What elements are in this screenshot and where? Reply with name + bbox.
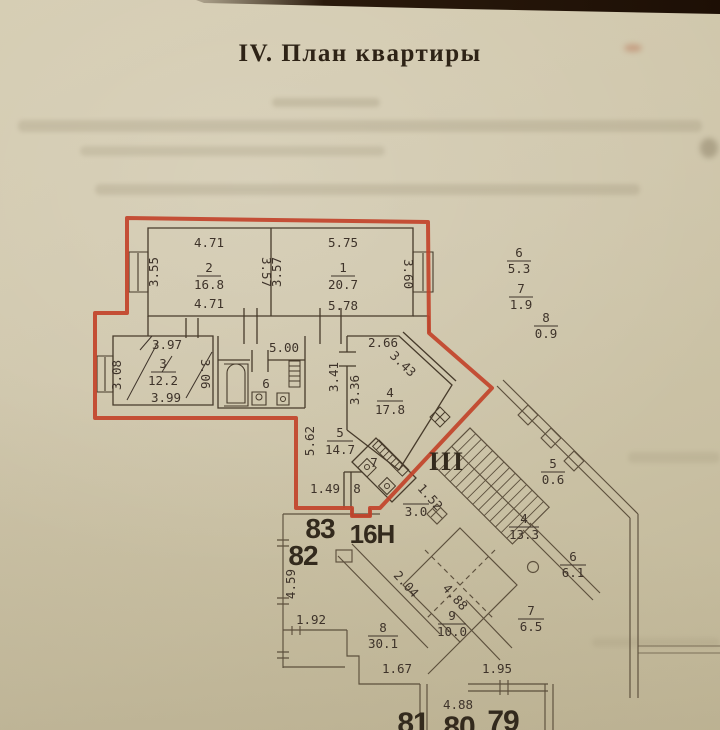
room5-area: 14.7 bbox=[325, 442, 355, 457]
stair6-number: 6 bbox=[569, 549, 577, 564]
room3-number: 3 bbox=[159, 356, 167, 371]
room8-plan-label: 8 bbox=[353, 481, 361, 496]
stair5-number: 5 bbox=[549, 456, 557, 471]
stair8-area: 30.1 bbox=[368, 636, 398, 651]
dim-seg4: 4.88 bbox=[443, 697, 473, 712]
stair8-number: 8 bbox=[379, 620, 387, 635]
room1-dim-top: 5.75 bbox=[328, 235, 358, 250]
scanned-floor-plan-page: IV. План квартиры bbox=[0, 0, 720, 730]
room7-plan-label: 7 bbox=[370, 455, 378, 470]
room6-plan-label: 6 bbox=[262, 376, 270, 391]
dim-landing-l: 3.0 bbox=[405, 504, 428, 519]
room4-area: 17.8 bbox=[375, 402, 405, 417]
room2-dim-top: 4.71 bbox=[194, 235, 224, 250]
room3-area: 12.2 bbox=[148, 373, 178, 388]
room6-area: 5.3 bbox=[508, 261, 531, 276]
dim-seg1: 1.92 bbox=[296, 612, 326, 627]
room6-number: 6 bbox=[515, 245, 523, 260]
room7-number: 7 bbox=[517, 281, 525, 296]
room4-number: 4 bbox=[386, 385, 394, 400]
dim-seg2: 1.67 bbox=[382, 661, 412, 676]
entry-dim: 1.49 bbox=[310, 481, 340, 496]
floor-plan-svg: 4.71 3.55 3.57 2 16.8 4.71 5.75 3.57 3.6… bbox=[0, 0, 720, 730]
room5-number: 5 bbox=[336, 425, 344, 440]
room4-dim-diagonal: 3.43 bbox=[387, 348, 419, 380]
room2-dim-bottom: 4.71 bbox=[194, 296, 224, 311]
room1-dim-right: 3.60 bbox=[401, 259, 416, 289]
room5-dim-side: 5.62 bbox=[302, 426, 317, 456]
unit-79: 79 bbox=[487, 705, 519, 730]
dim-corr-w: 2.04 bbox=[391, 568, 422, 600]
room2-dim-left: 3.55 bbox=[146, 257, 161, 287]
unit-16n: 16Н bbox=[350, 519, 395, 549]
room3-dim-left: 3.08 bbox=[109, 360, 124, 390]
unit-81: 81 bbox=[397, 707, 429, 730]
stair7-area: 6.5 bbox=[520, 619, 543, 634]
stair5-area: 0.6 bbox=[542, 472, 565, 487]
stair-section-label: III bbox=[429, 447, 465, 476]
unit-80: 80 bbox=[443, 711, 475, 730]
room8-number: 8 bbox=[542, 310, 550, 325]
unit-82: 82 bbox=[288, 540, 318, 571]
room1-dim-bottom: 5.78 bbox=[328, 298, 358, 313]
stair4-number: 4 bbox=[520, 511, 528, 526]
dim-wall-left: 4.59 bbox=[283, 569, 298, 599]
room3-dim-top: 3.97 bbox=[152, 337, 182, 352]
room2-area: 16.8 bbox=[194, 277, 224, 292]
stair6-area: 6.1 bbox=[562, 565, 585, 580]
room1-dim-left: 3.57 bbox=[269, 257, 284, 287]
room4-dim-left-upper: 3.41 bbox=[326, 362, 341, 392]
stair9-area: 10.0 bbox=[437, 624, 467, 639]
room7-area: 1.9 bbox=[510, 297, 533, 312]
room3-dim-bottom: 3.99 bbox=[151, 390, 181, 405]
room3-dim-right: 3.06 bbox=[198, 359, 213, 389]
stair4-area: 13.3 bbox=[509, 527, 539, 542]
room8-area: 0.9 bbox=[535, 326, 558, 341]
room1-number: 1 bbox=[339, 260, 347, 275]
dim-seg3: 1.95 bbox=[482, 661, 512, 676]
corridor-dim: 5.00 bbox=[269, 340, 299, 355]
room4-dim-top: 2.66 bbox=[368, 335, 398, 350]
room4-dim-left-lower: 3.36 bbox=[347, 375, 362, 405]
stair9-number: 9 bbox=[448, 608, 456, 623]
room1-area: 20.7 bbox=[328, 277, 358, 292]
stair7-number: 7 bbox=[527, 603, 535, 618]
room2-number: 2 bbox=[205, 260, 213, 275]
